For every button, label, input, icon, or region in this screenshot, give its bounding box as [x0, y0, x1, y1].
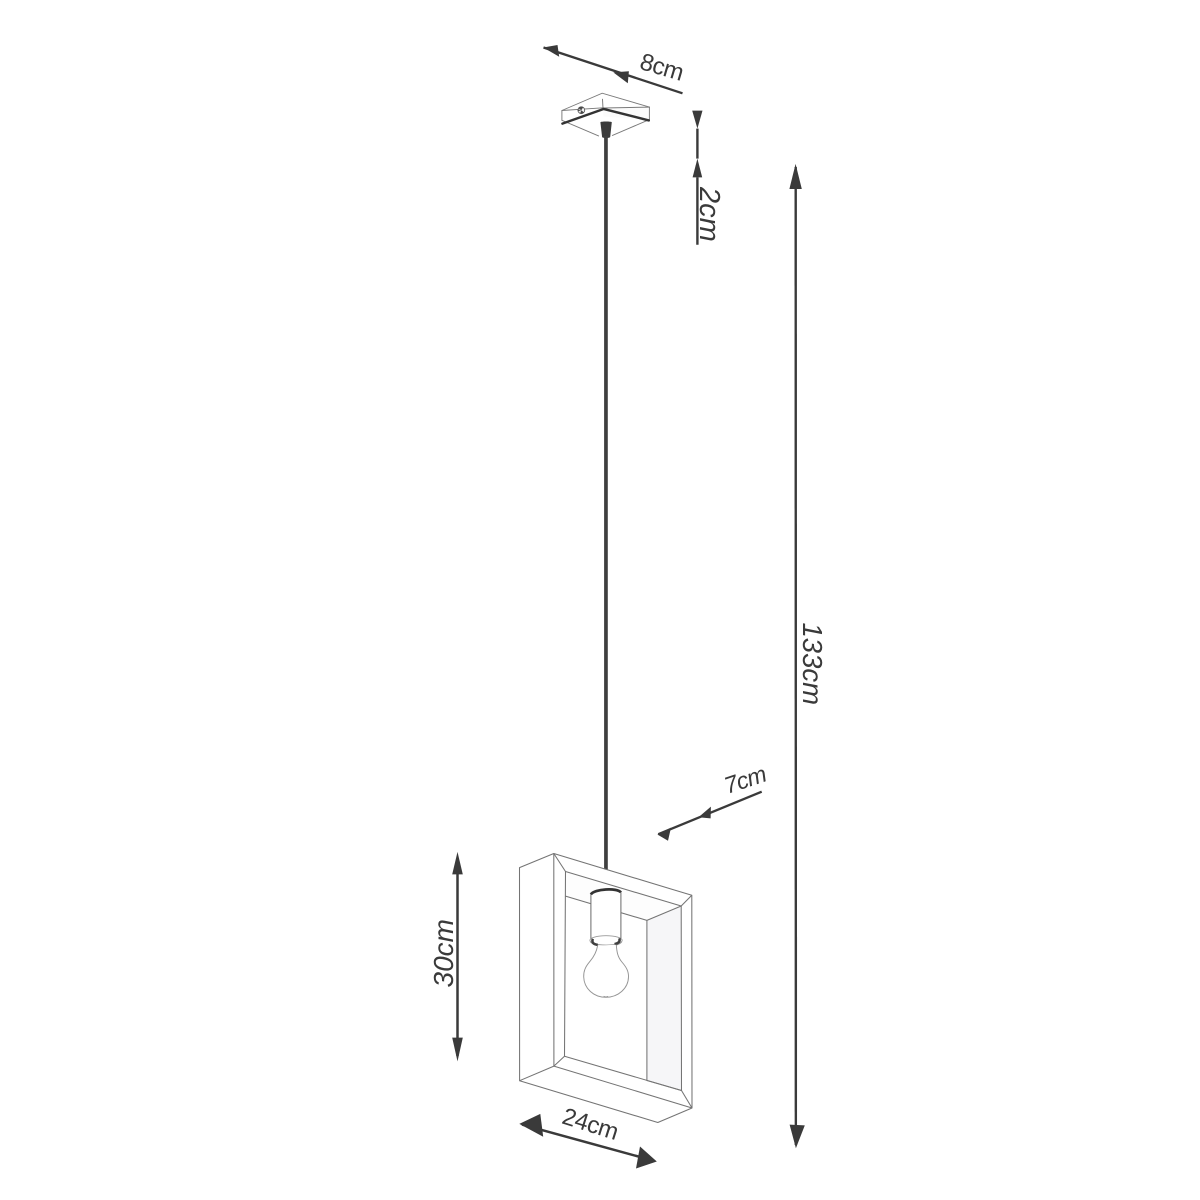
- svg-text:133cm: 133cm: [797, 623, 828, 706]
- svg-text:2cm: 2cm: [693, 186, 725, 242]
- svg-text:30cm: 30cm: [428, 919, 459, 987]
